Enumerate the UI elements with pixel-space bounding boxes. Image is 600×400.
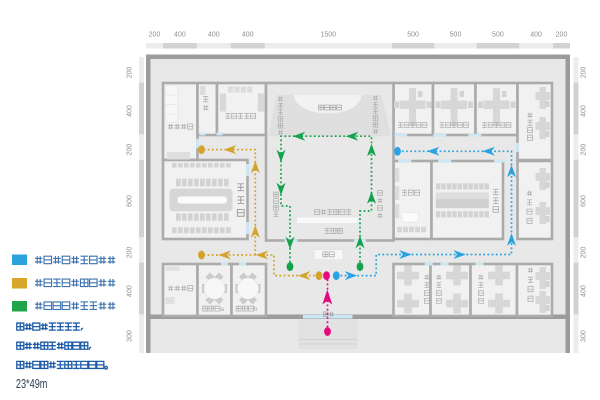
svg-text:200: 200 <box>127 66 134 78</box>
svg-text:400: 400 <box>208 32 220 39</box>
svg-text:500: 500 <box>492 32 504 39</box>
svg-text:200: 200 <box>581 144 588 156</box>
svg-text:400: 400 <box>127 105 134 117</box>
svg-text:200: 200 <box>127 247 134 259</box>
svg-text:200: 200 <box>581 66 588 78</box>
svg-text:b: b <box>254 306 258 313</box>
svg-text:400: 400 <box>581 285 588 297</box>
svg-text:600: 600 <box>581 195 588 207</box>
svg-text:500: 500 <box>407 32 419 39</box>
svg-text:400: 400 <box>242 32 254 39</box>
svg-text:200: 200 <box>556 32 568 39</box>
svg-text:1500: 1500 <box>321 32 337 39</box>
svg-text:200: 200 <box>581 247 588 259</box>
svg-text:a: a <box>221 306 225 313</box>
svg-text:500: 500 <box>450 32 462 39</box>
svg-text:200: 200 <box>149 32 161 39</box>
svg-text:200: 200 <box>127 144 134 156</box>
svg-text:600: 600 <box>127 195 134 207</box>
svg-text:400: 400 <box>174 32 186 39</box>
svg-text:400: 400 <box>530 32 542 39</box>
svg-text:23*49m: 23*49m <box>16 377 48 391</box>
svg-text:300: 300 <box>581 330 588 342</box>
svg-text:400: 400 <box>127 285 134 297</box>
svg-text:400: 400 <box>581 105 588 117</box>
svg-text:300: 300 <box>127 330 134 342</box>
